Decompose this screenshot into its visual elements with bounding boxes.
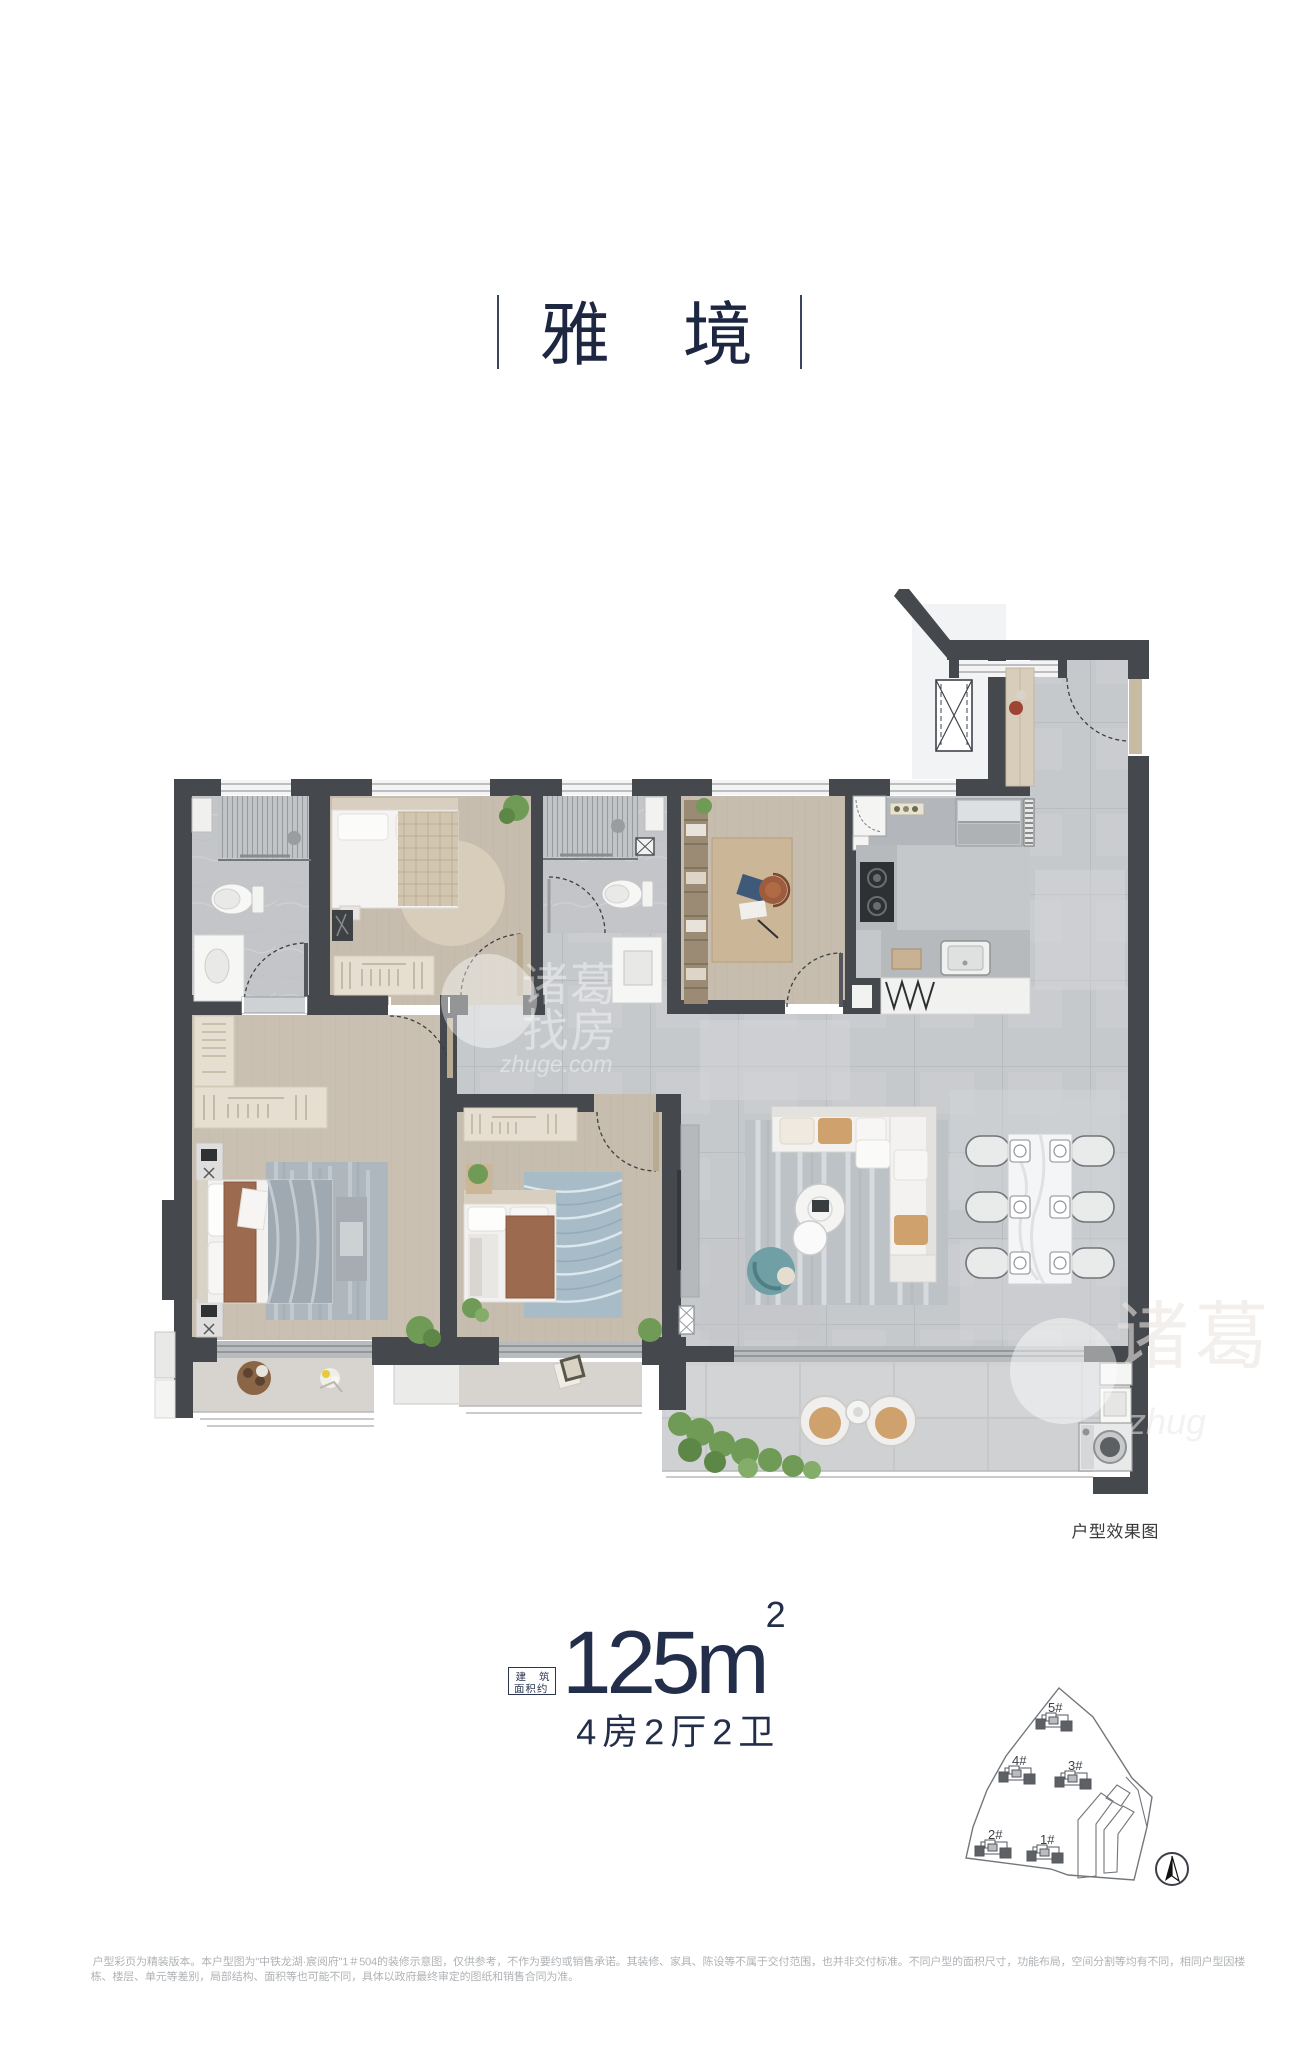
svg-text:2#: 2# — [988, 1827, 1003, 1842]
svg-text:3#: 3# — [1068, 1758, 1083, 1773]
svg-text:4#: 4# — [1012, 1753, 1027, 1768]
svg-text:5#: 5# — [1048, 1700, 1063, 1715]
svg-text:zhuge.com: zhuge.com — [499, 1051, 613, 1077]
svg-text:zhug: zhug — [1127, 1401, 1206, 1442]
svg-text:1#: 1# — [1040, 1832, 1055, 1847]
